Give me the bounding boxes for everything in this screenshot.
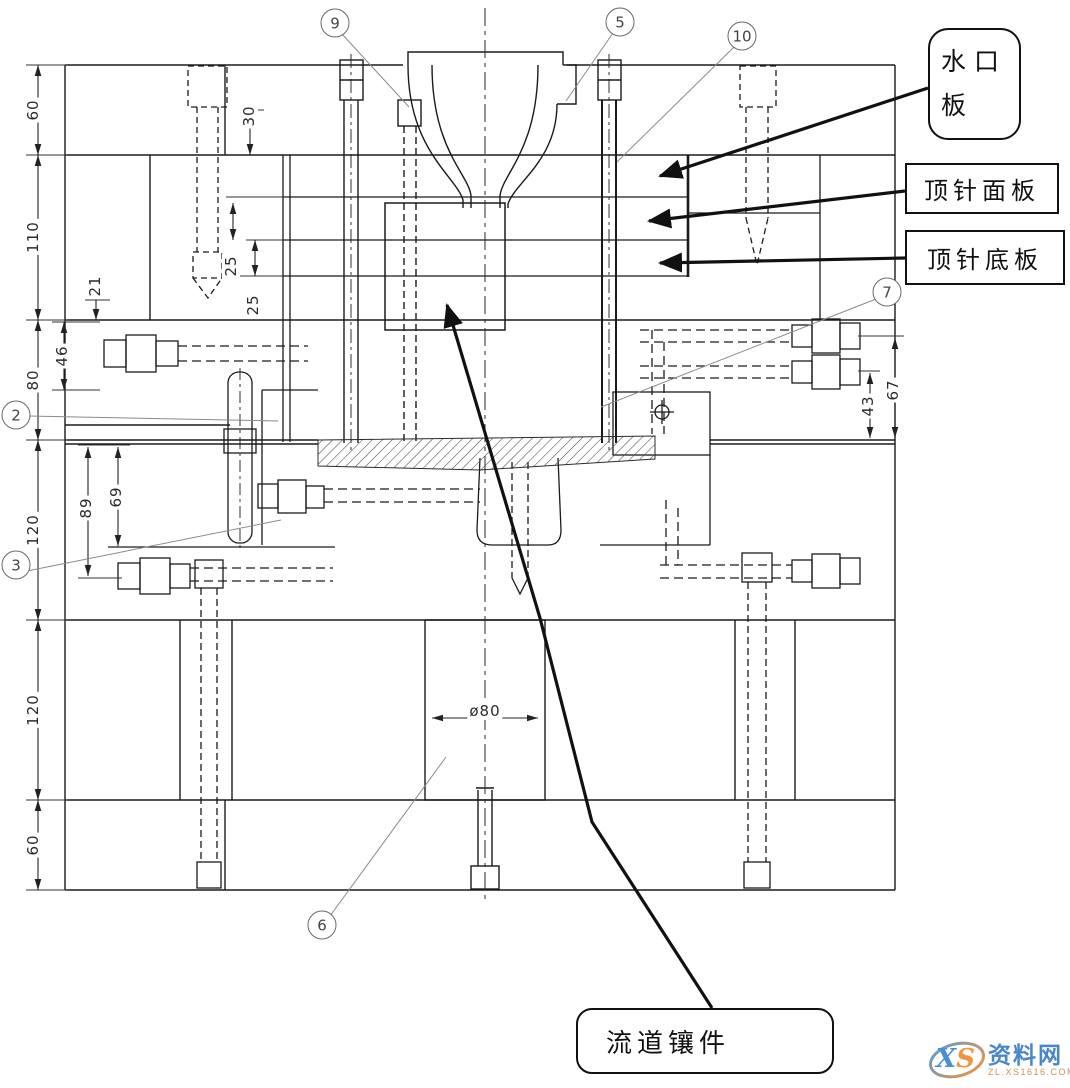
dim-120-b: 120 — [24, 692, 42, 728]
dim-25-a: 25 — [222, 253, 240, 278]
dimension-lines — [38, 65, 895, 890]
balloon-5: 5 — [606, 8, 635, 37]
balloon-leaders — [27, 33, 876, 916]
dim-110: 110 — [24, 219, 42, 255]
dim-80: 80 — [24, 367, 42, 392]
balloon-7: 7 — [873, 278, 902, 307]
dim-43: 43 — [859, 393, 877, 418]
dim-25-b: 25 — [244, 292, 262, 317]
watermark-url: ZL.XS1616.COM — [988, 1067, 1070, 1078]
balloon-10: 10 — [728, 22, 757, 51]
label-ejector-bottom-plate: 顶针底板 — [905, 230, 1065, 285]
label-runner-insert: 流道镶件 — [576, 1008, 834, 1074]
bottom-bolts — [195, 553, 772, 888]
mold-assembly-drawing: 60 110 80 120 120 60 30 21 46 25 25 89 6… — [0, 0, 1070, 1088]
dim-21: 21 — [86, 273, 104, 298]
plate-outlines — [65, 65, 895, 890]
balloon-2: 2 — [2, 401, 31, 430]
dim-46: 46 — [53, 343, 71, 368]
watermark: XS 资料网 ZL.XS1616.COM — [928, 1034, 1070, 1086]
runner-insert-block — [385, 203, 505, 330]
dim-89: 89 — [77, 495, 95, 520]
balloon-3: 3 — [2, 551, 31, 580]
dim-60-bot: 60 — [24, 832, 42, 857]
dim-120-a: 120 — [24, 512, 42, 548]
watermark-xs-text: XS — [936, 1044, 975, 1074]
dim-30: 30 — [240, 103, 258, 128]
watermark-logo: XS — [928, 1038, 986, 1082]
extension-lines — [26, 65, 904, 890]
guide-pins — [340, 54, 621, 450]
balloon-9: 9 — [321, 9, 350, 38]
dim-69: 69 — [107, 484, 125, 509]
stripper-plate-stack — [283, 155, 820, 442]
dim-60-top: 60 — [24, 97, 42, 122]
label-ejector-face-plate: 顶针面板 — [905, 163, 1059, 214]
dim-dia80: ø80 — [467, 702, 502, 720]
watermark-site-name: 资料网 — [988, 1043, 1070, 1067]
label-water-gate-plate: 水口板 — [928, 28, 1021, 140]
spacer-and-support — [180, 620, 795, 889]
sprue-bushing — [408, 52, 576, 208]
dim-67: 67 — [884, 377, 902, 402]
balloon-6: 6 — [308, 911, 337, 940]
